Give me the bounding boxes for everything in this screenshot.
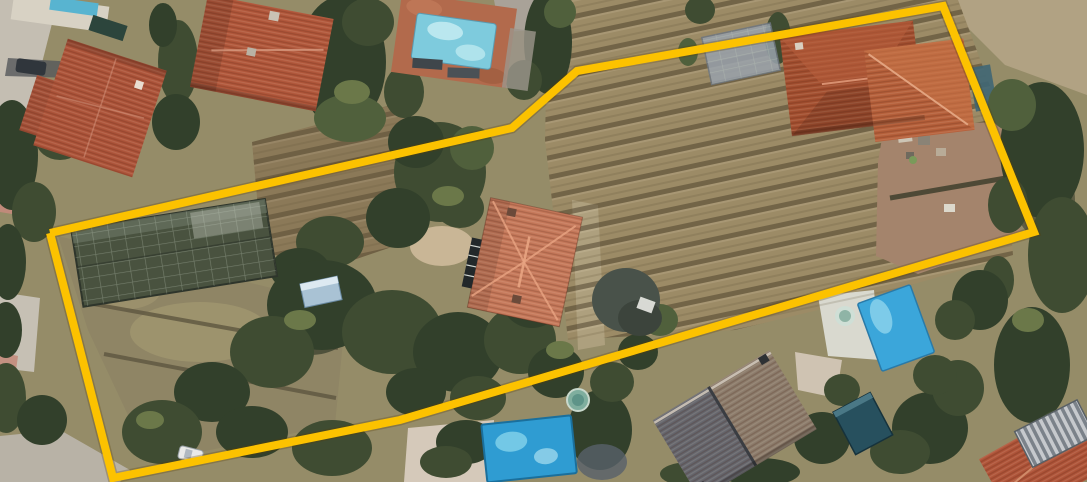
aerial-scene: [0, 0, 1087, 482]
spa-south: [567, 389, 589, 411]
chimney: [268, 11, 280, 22]
lounger: [412, 58, 443, 70]
pool-south: [481, 415, 577, 482]
chimney: [795, 42, 804, 50]
chimney: [246, 47, 256, 57]
shadow-patch: [577, 444, 627, 480]
satellite-map-viewport[interactable]: [0, 0, 1087, 482]
spa-southeast: [835, 306, 855, 326]
lounger: [447, 67, 479, 78]
